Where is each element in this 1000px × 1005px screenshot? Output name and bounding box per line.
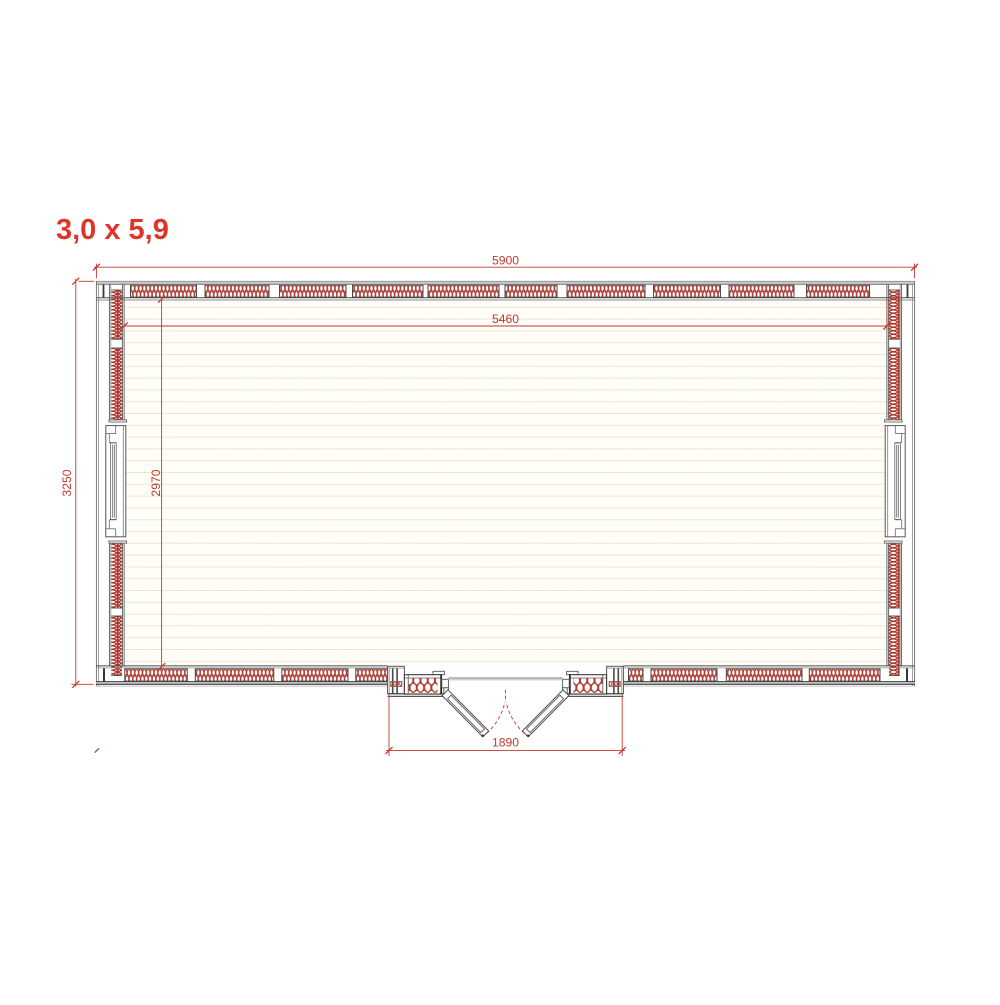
svg-text:3,0 x 5,9: 3,0 x 5,9 (56, 214, 169, 246)
svg-text:5900: 5900 (492, 253, 519, 267)
svg-text:1890: 1890 (492, 735, 519, 749)
svg-text:3250: 3250 (60, 469, 74, 496)
svg-text:2970: 2970 (149, 469, 163, 496)
svg-text:5460: 5460 (492, 312, 519, 326)
